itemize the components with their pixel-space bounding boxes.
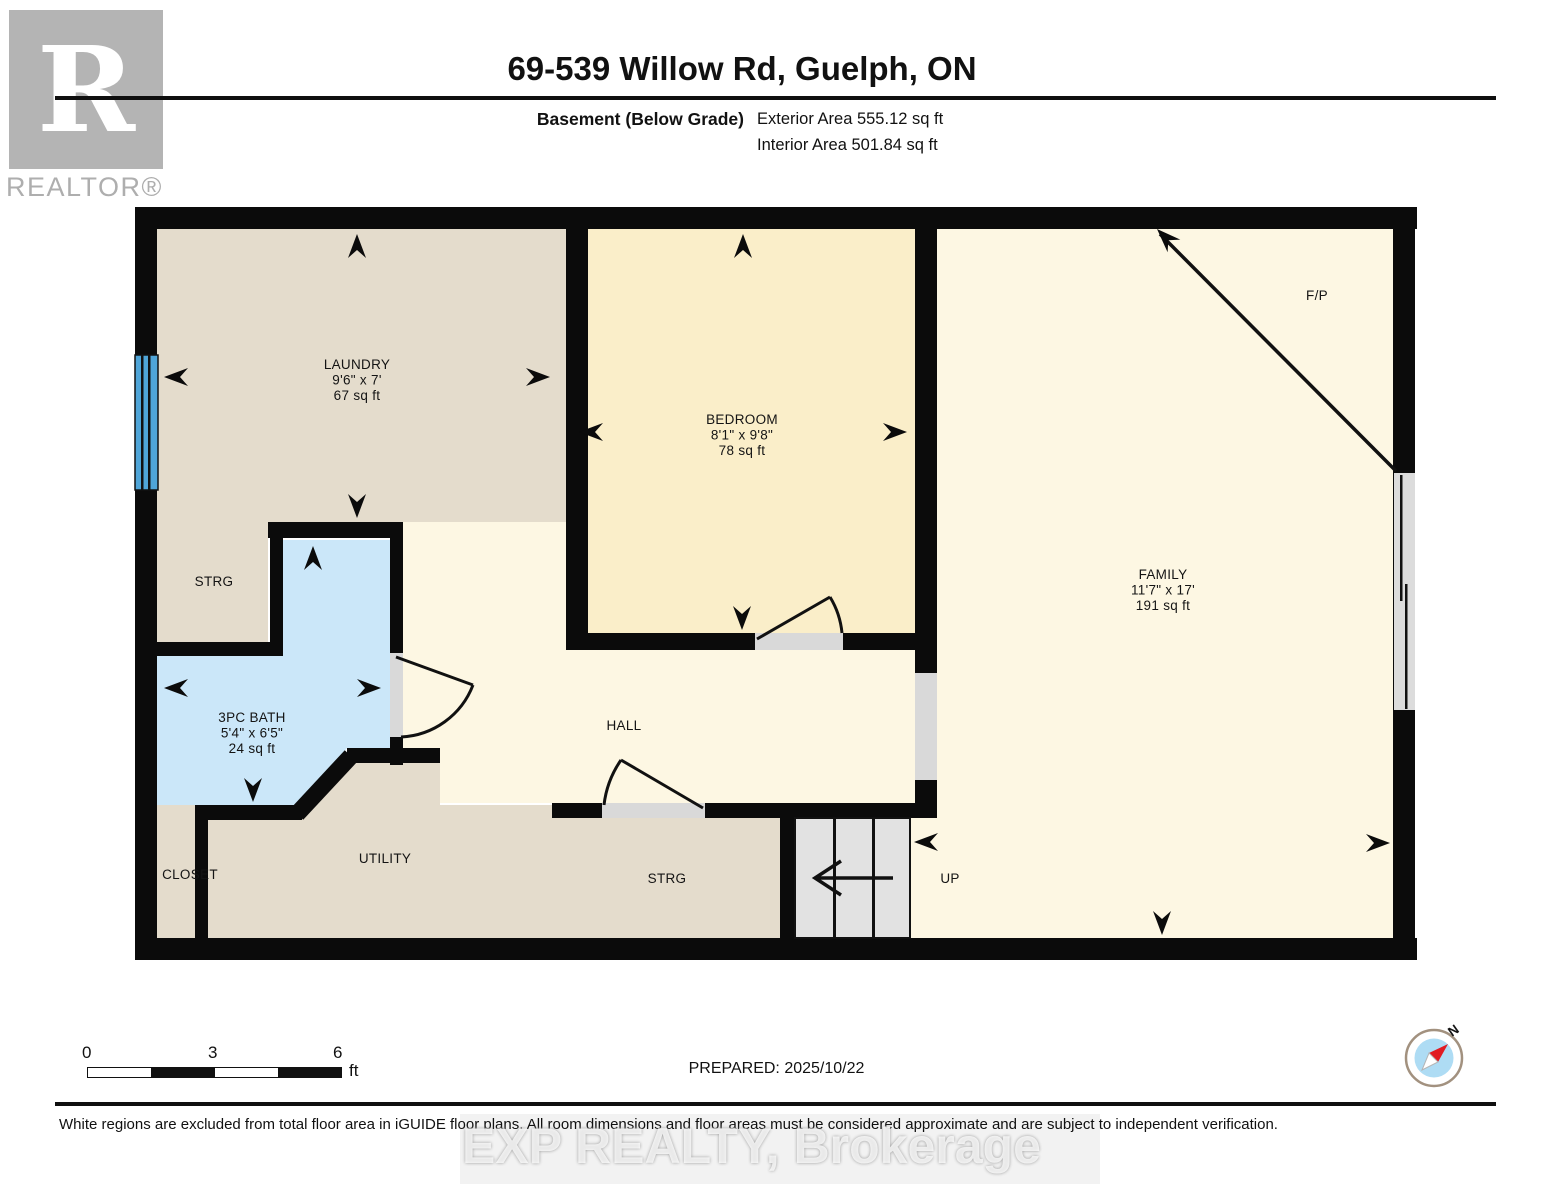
brokerage-watermark: EXP REALTY, Brokerage [462,1117,1102,1175]
bath-label: 3PC BATH [218,710,285,725]
bath-area: 24 sq ft [229,741,276,756]
hall-label: HALL [607,718,642,733]
footer-divider [55,1102,1496,1106]
header-divider [55,96,1496,100]
bedroom-label: BEDROOM [706,412,778,427]
staircase [795,818,910,938]
fireplace-label: F/P [1306,288,1328,303]
storage-door [602,803,705,818]
strg-upper-label: STRG [195,574,234,589]
prepared-date: PREPARED: 2025/10/22 [0,1060,1553,1078]
utility-label: UTILITY [359,851,411,866]
room-floors [157,229,1393,938]
strg-lower-label: STRG [648,871,687,886]
bath-dims: 5'4" x 6'5" [221,726,283,741]
right-window [1394,473,1415,710]
left-window [135,355,158,490]
laundry-dims: 9'6" x 7' [332,373,381,388]
floor-plan-page: R REALTOR® 69-539 Willow Rd, Guelph, ON … [0,0,1553,1200]
bedroom-door [755,633,843,650]
hall-family-opening [915,673,937,780]
bath-door [390,653,403,737]
up-label: UP [940,871,959,886]
floor-plan-drawing: LAUNDRY 9'6" x 7' 67 sq ft BEDROOM 8'1" … [0,0,1553,1200]
laundry-label: LAUNDRY [324,357,390,372]
bedroom-area: 78 sq ft [719,443,766,458]
bedroom-dims: 8'1" x 9'8" [711,428,773,443]
family-label: FAMILY [1139,567,1188,582]
family-dims: 11'7" x 17' [1131,583,1195,598]
closet-label: CLOSET [162,867,218,882]
family-area: 191 sq ft [1136,598,1191,613]
laundry-area: 67 sq ft [334,388,381,403]
